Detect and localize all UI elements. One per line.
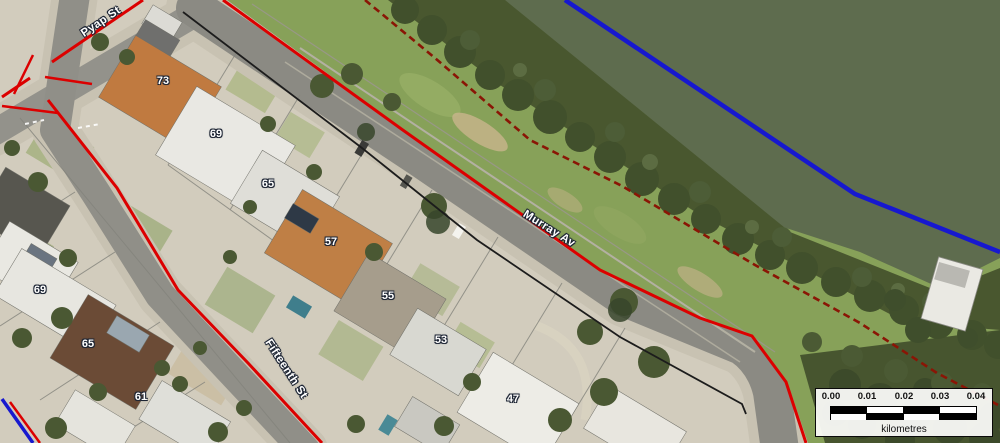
- scale-tick: 0.01: [858, 391, 877, 402]
- scale-tick: 0.00: [822, 391, 841, 402]
- scale-tick: 0.03: [931, 391, 950, 402]
- scale-bar-ticks: 0.00 0.01 0.02 0.03 0.04: [816, 390, 992, 402]
- aerial-imagery: [0, 0, 1000, 443]
- scale-bar: 0.00 0.01 0.02 0.03 0.04 kilometres: [815, 388, 993, 437]
- scale-bar-unit-label: kilometres: [816, 424, 992, 435]
- scale-bar-checkered-bar: [830, 406, 977, 420]
- aerial-map-view[interactable]: Pyap St Murray Av Fifteenth St 73 69 65 …: [0, 0, 1000, 443]
- scale-tick: 0.02: [895, 391, 914, 402]
- scale-tick: 0.04: [967, 391, 986, 402]
